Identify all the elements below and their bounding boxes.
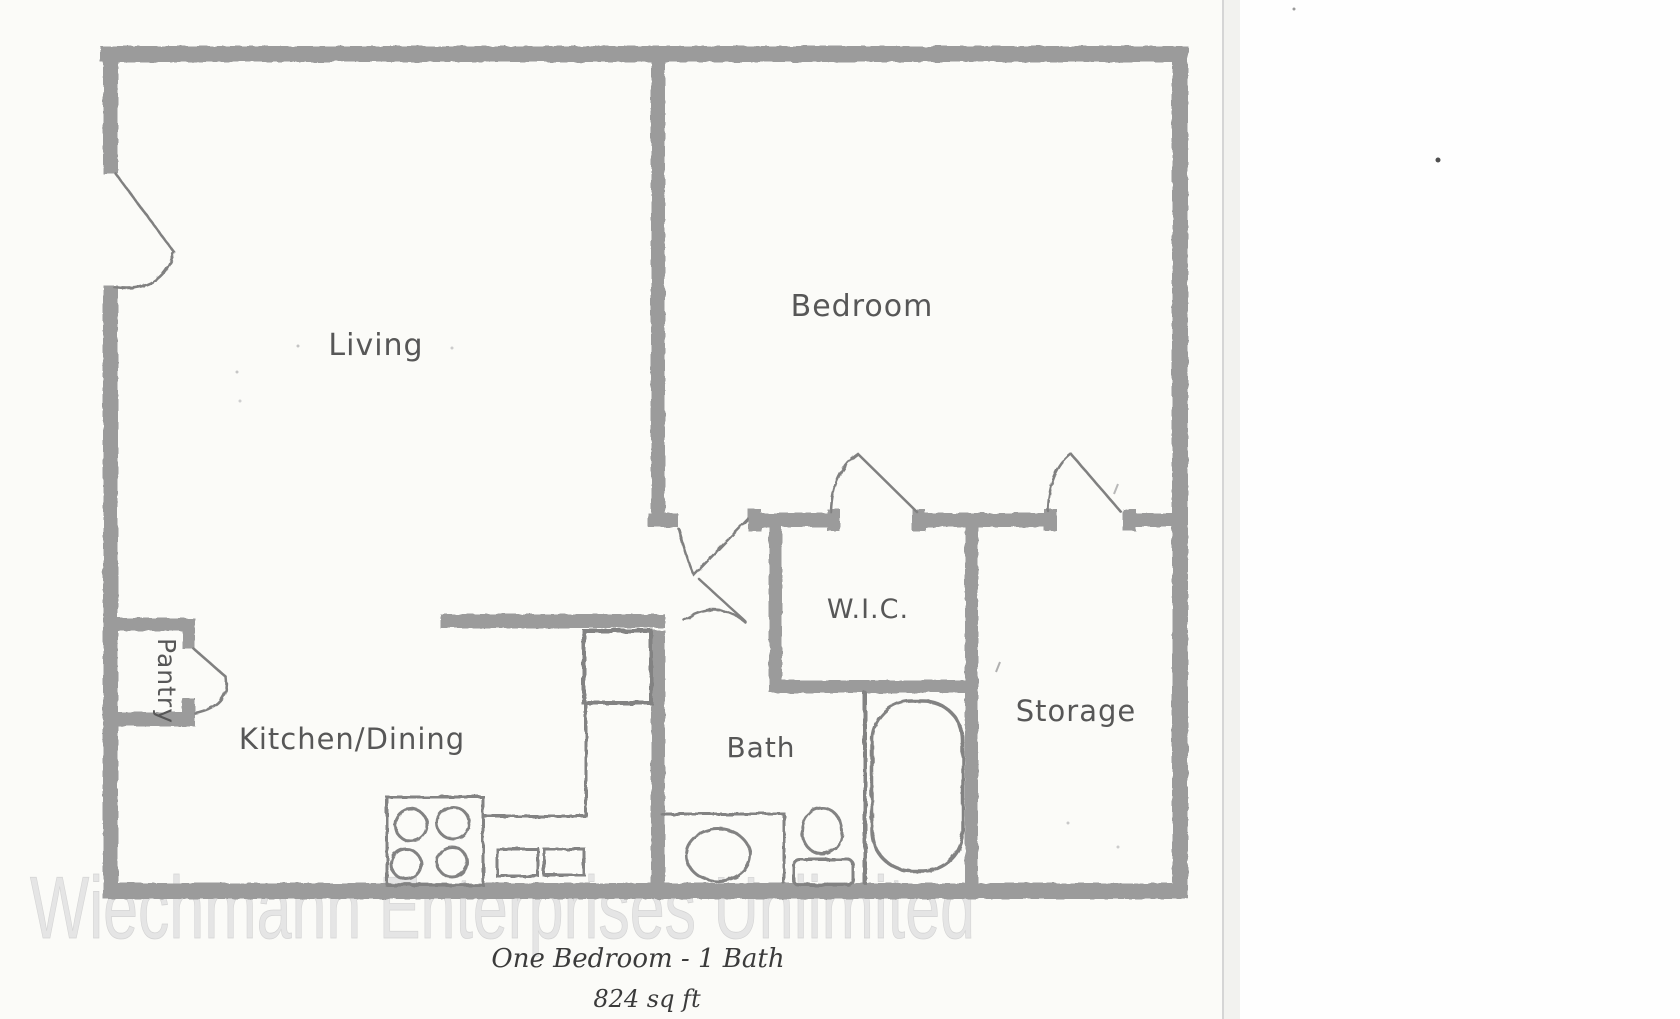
scanned-floor-plan-page: Wiechmann Enterprises Unlimited [0,0,1680,1019]
scan-speck [1117,846,1120,849]
wall-left-lower [103,285,118,898]
wall-top [100,46,1188,62]
wall-bottom [103,883,1188,899]
wall-left-upper [103,46,118,174]
scan-speck [451,347,454,350]
room-label-storage: Storage [1016,694,1136,728]
door-jamb [912,509,925,531]
door-jamb [1044,509,1057,531]
wall-wic-storage [965,527,978,885]
floor-plan-svg: Wiechmann Enterprises Unlimited [0,0,1680,1019]
scan-speck [1067,822,1070,825]
wall-right [1172,46,1188,899]
scan-speck [239,400,242,403]
paper-edge-shade [1224,0,1240,1019]
door-jamb [182,698,195,712]
plan-area-caption: 824 sq ft [593,985,701,1013]
room-label-bedroom: Bedroom [791,289,934,324]
room-label-wic: W.I.C. [827,594,909,625]
door-jamb [748,509,761,531]
wall-bath-left [651,630,665,885]
wall-cap [648,513,678,527]
wall-wic-left [769,527,782,682]
scan-speck [297,345,300,348]
scan-speck [1436,158,1441,163]
watermark: Wiechmann Enterprises Unlimited [30,858,975,957]
door-jamb [1123,509,1136,531]
wall-wic-top-b [912,513,1057,527]
wall-kitchen-living [440,614,665,628]
room-label-pantry: Pantry [152,638,181,724]
scan-speck [1293,8,1296,11]
wall-living-bedroom [651,62,665,514]
plan-title-caption: One Bedroom - 1 Bath [491,944,784,974]
room-label-bath: Bath [726,731,795,764]
scanner-margin [1224,0,1680,1019]
wall-wic-bottom [769,680,978,693]
wall-wic-top-a [748,513,840,527]
scan-speck [236,371,239,374]
room-label-kitchen-dining: Kitchen/Dining [239,722,465,756]
door-jamb [827,509,840,531]
wall-pantry-top [118,618,195,631]
room-label-living: Living [328,328,423,363]
door-jamb [182,631,195,649]
